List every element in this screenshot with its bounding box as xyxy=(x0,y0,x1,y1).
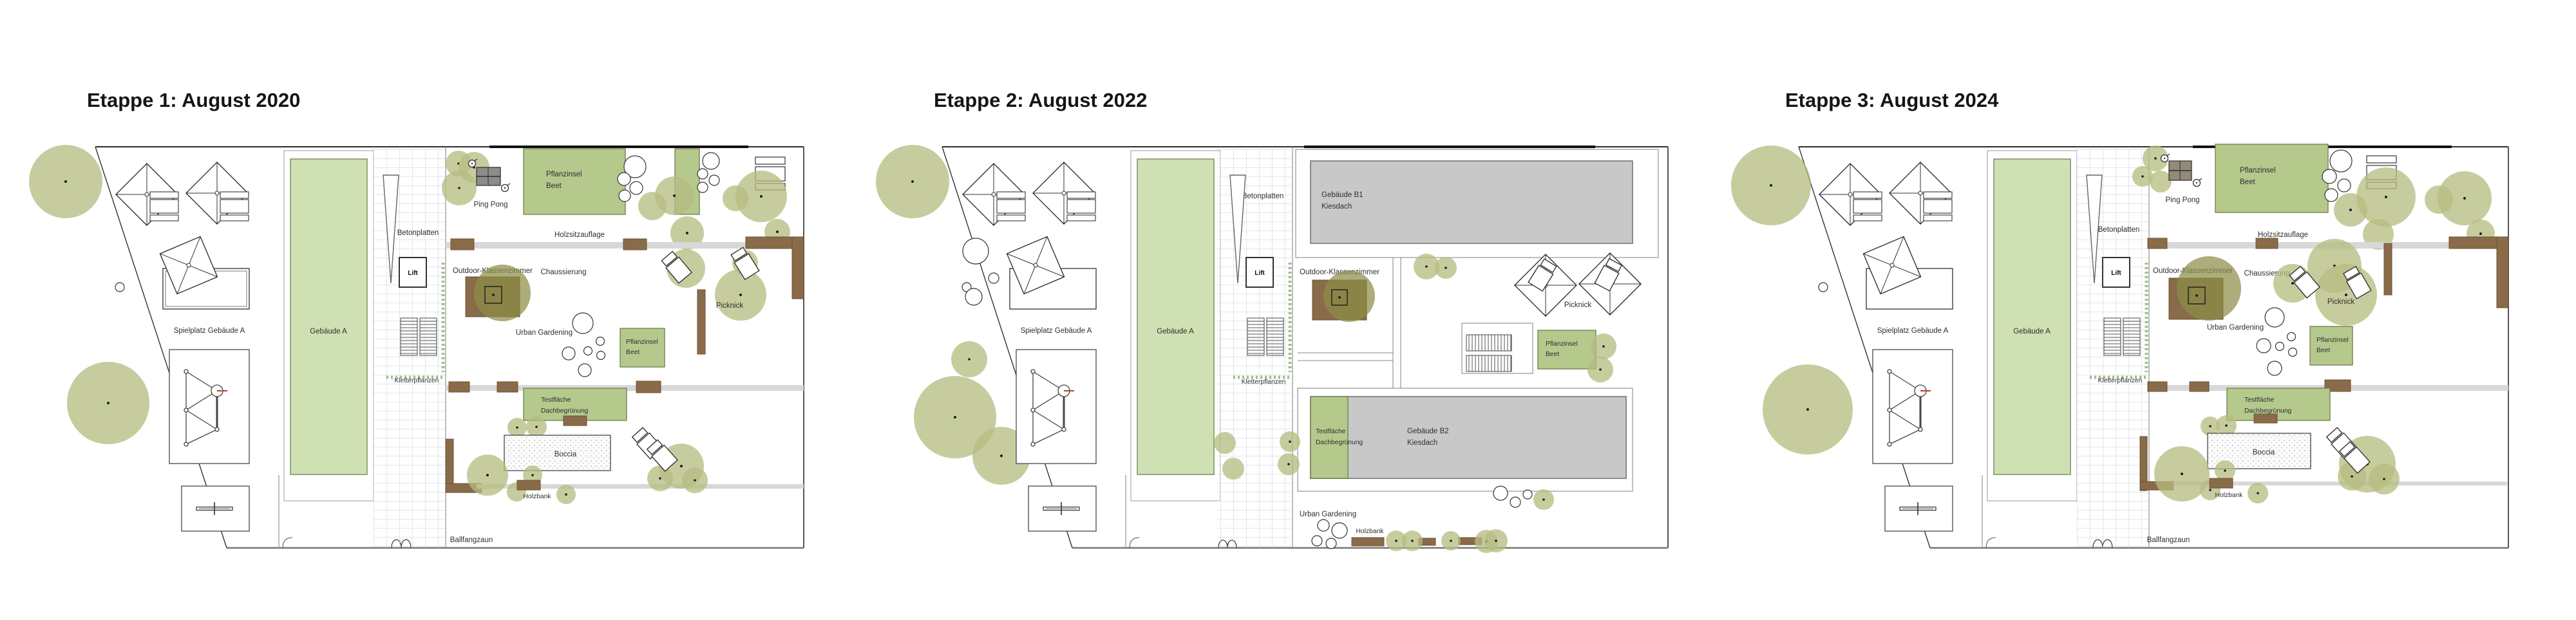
urban-gardening-label: Urban Gardening xyxy=(516,329,573,337)
wood-bench xyxy=(1352,538,1384,546)
wood-wall xyxy=(2384,243,2392,295)
panel-3-title: Etappe 3: August 2024 xyxy=(1785,89,1998,112)
holzbank-label: Holzbank xyxy=(1356,528,1385,535)
playground-area: Spielplatz Gebäude A xyxy=(1731,146,1953,531)
site-plan-etappe-3: Spielplatz Gebäude A Gebäude A Betonplat… xyxy=(1768,140,2518,568)
bench-stack xyxy=(1853,192,1882,221)
temporary-building-b1: Gebäude B1 Kiesdach xyxy=(1296,149,1658,258)
betonplatten-label: Betonplatten xyxy=(1242,193,1284,200)
holzbank-label: Holzbank xyxy=(524,493,552,500)
stairs-icon xyxy=(420,318,437,355)
middle-courtyard: Outdoor-Klassenzimmer Picknick Pflanzins… xyxy=(1298,253,1641,388)
kletterpflanzen-label: Kletterpflanzen xyxy=(395,377,439,384)
picknick-label: Picknick xyxy=(2327,298,2354,306)
gebaeude-a-label: Gebäude A xyxy=(2013,328,2050,335)
bench-stack xyxy=(150,192,178,221)
pflanzinsel-label: Pflanzinsel xyxy=(1546,341,1578,348)
dachbegruenung-label: Dachbegrünung xyxy=(1316,439,1363,446)
gebaeude-a-label: Gebäude A xyxy=(310,328,347,335)
bench-stack xyxy=(220,192,249,221)
middle-courtyard: Outdoor-Klassenzimmer Chaussierung Urban… xyxy=(2153,239,2392,375)
beet-label: Beet xyxy=(2316,347,2330,354)
playground-area: Spielplatz Gebäude A xyxy=(29,145,249,531)
beet-label: Beet xyxy=(1546,351,1559,358)
gebaeude-b2-label: Gebäude B2 xyxy=(1407,427,1449,435)
ping-pong-label: Ping Pong xyxy=(2165,196,2199,204)
swing-area xyxy=(1016,350,1096,464)
round-planters xyxy=(963,238,999,305)
door-arc-icon xyxy=(1130,538,1139,548)
holzsitzauflage-label: Holzsitzauflage xyxy=(554,231,605,239)
ping-pong-label: Ping Pong xyxy=(473,201,507,209)
upper-courtyard: Ping Pong Pflanzinsel Beet xyxy=(2132,144,2495,250)
upper-courtyard: Ping Pong Pflanzinsel Beet xyxy=(442,149,790,250)
beet-label: Beet xyxy=(2240,178,2255,186)
urban-gardening-label: Urban Gardening xyxy=(2207,324,2264,332)
urban-gardening-pots xyxy=(1312,520,1347,549)
pflanzinsel-label: Pflanzinsel xyxy=(546,171,582,178)
lift-label: Lift xyxy=(1255,270,1265,277)
urban-gardening-pots xyxy=(562,313,605,377)
playground-area: Spielplatz Gebäude A xyxy=(876,145,1096,531)
pflanzinsel-label: Pflanzinsel xyxy=(626,339,658,346)
building-a: Gebäude A xyxy=(279,151,374,548)
concrete-path: Betonplatten Lift Kletterpflanzen xyxy=(1214,147,1293,548)
ballfangzaun-label: Ballfangzaun xyxy=(450,536,493,544)
ballfangzaun-label: Ballfangzaun xyxy=(2147,536,2190,544)
bottom-strip: Urban Gardening Holzbank xyxy=(1300,486,1554,553)
building-a: Gebäude A xyxy=(1126,151,1220,548)
testflaeche-label: Testfläche xyxy=(1316,428,1346,435)
kiesdach-label: Kiesdach xyxy=(1321,203,1352,211)
kiesdach-label: Kiesdach xyxy=(1407,439,1437,447)
spielplatz-label: Spielplatz Gebäude A xyxy=(1877,327,1949,335)
stairs-icon xyxy=(2123,318,2140,355)
watering-can-icon xyxy=(2193,178,2202,187)
round-planters xyxy=(1493,486,1532,507)
stairs-icon xyxy=(401,318,417,355)
spielplatz-label: Spielplatz Gebäude A xyxy=(1021,327,1092,335)
picknick-label: Picknick xyxy=(1564,301,1591,309)
planting-island xyxy=(1538,330,1596,369)
dachbegruenung-label: Dachbegrünung xyxy=(2244,408,2292,415)
planting-island-top xyxy=(524,149,625,214)
pflanzinsel-label: Pflanzinsel xyxy=(2316,337,2349,344)
gebaeude-b1-label: Gebäude B1 xyxy=(1321,191,1363,199)
wood-bench xyxy=(517,480,540,490)
pflanzinsel-label: Pflanzinsel xyxy=(2240,167,2276,174)
bench-stack xyxy=(997,192,1025,221)
lift-label: Lift xyxy=(2111,270,2121,277)
holzbank-label: Holzbank xyxy=(2215,492,2244,499)
stairs-icon xyxy=(2104,318,2121,355)
betonplatten-label: Betonplatten xyxy=(397,229,439,237)
planting-island-top xyxy=(2215,144,2328,212)
testflaeche-label: Testfläche xyxy=(541,397,571,404)
concrete-path: Betonplatten Lift Kletterpflanzen xyxy=(374,147,446,548)
site-plan-etappe-2: Spielplatz Gebäude A Gebäude A Betonplat… xyxy=(911,140,1678,568)
beet-label: Beet xyxy=(626,349,639,356)
concrete-path: Betonplatten Lift Kletterpflanzen xyxy=(2077,147,2149,548)
tree-over-deck xyxy=(2177,256,2241,321)
testflaeche-label: Testfläche xyxy=(2244,397,2275,404)
bench-stack xyxy=(1924,192,1952,221)
swing-area xyxy=(1873,350,1953,464)
door-arc-icon xyxy=(1986,538,1996,548)
lift-label: Lift xyxy=(408,270,418,277)
beet-label: Beet xyxy=(546,182,562,190)
urban-gardening-label: Urban Gardening xyxy=(1300,511,1356,518)
betonplatten-label: Betonplatten xyxy=(2098,226,2140,234)
lower-courtyard: Boccia Holzbank Ballfangzaun xyxy=(446,417,804,544)
holzsitzauflage-label: Holzsitzauflage xyxy=(2258,231,2308,239)
picknick-label: Picknick xyxy=(716,302,743,310)
planting-island-mid xyxy=(620,328,665,367)
lower-band: Testfläche Dachbegrünung xyxy=(2148,380,2508,423)
lower-courtyard: Boccia Holzbank Ballfangzaun xyxy=(2140,415,2507,544)
planting-island-mid xyxy=(2310,326,2353,365)
site-plan-etappe-1: Spielplatz Gebäude A Gebäude A Betonplat… xyxy=(64,140,811,568)
tree-over-deck xyxy=(1323,270,1375,322)
boccia-label: Boccia xyxy=(554,451,577,458)
test-roof-area xyxy=(2227,388,2330,420)
swing-area xyxy=(169,350,249,464)
dachbegruenung-label: Dachbegrünung xyxy=(541,408,589,415)
door-arc-icon xyxy=(283,538,292,548)
tree-over-deck xyxy=(474,265,531,321)
stairs-icon xyxy=(1466,355,1511,371)
kletterpflanzen-label: Kletterpflanzen xyxy=(2098,377,2143,384)
middle-courtyard: Outdoor-Klassenzimmer Chaussierung Urban… xyxy=(453,247,766,377)
boccia-label: Boccia xyxy=(2253,449,2275,456)
lower-band: Testfläche Dachbegrünung xyxy=(446,381,804,426)
building-a: Gebäude A xyxy=(1982,151,2077,548)
stairs-icon xyxy=(1247,318,1264,355)
kletterpflanzen-label: Kletterpflanzen xyxy=(1242,379,1286,386)
spielplatz-label: Spielplatz Gebäude A xyxy=(174,327,245,335)
stairs-icon xyxy=(1466,335,1511,351)
bench-stack xyxy=(1067,192,1095,221)
wood-wall xyxy=(697,290,705,354)
temporary-building-b2: Testfläche Dachbegrünung Gebäude B2 Kies… xyxy=(1278,388,1633,491)
watering-can-icon xyxy=(502,183,511,192)
chaussierung-label: Chaussierung xyxy=(541,268,587,276)
stairs-icon xyxy=(1267,318,1283,355)
wood-bench xyxy=(2210,478,2233,488)
urban-gardening-pots xyxy=(2257,308,2297,375)
panel-2-title: Etappe 2: August 2022 xyxy=(934,89,1147,112)
test-roof-area xyxy=(1311,397,1348,478)
panel-1-title: Etappe 1: August 2020 xyxy=(87,89,300,112)
round-planters xyxy=(697,153,719,193)
gebaeude-a-label: Gebäude A xyxy=(1157,328,1194,335)
